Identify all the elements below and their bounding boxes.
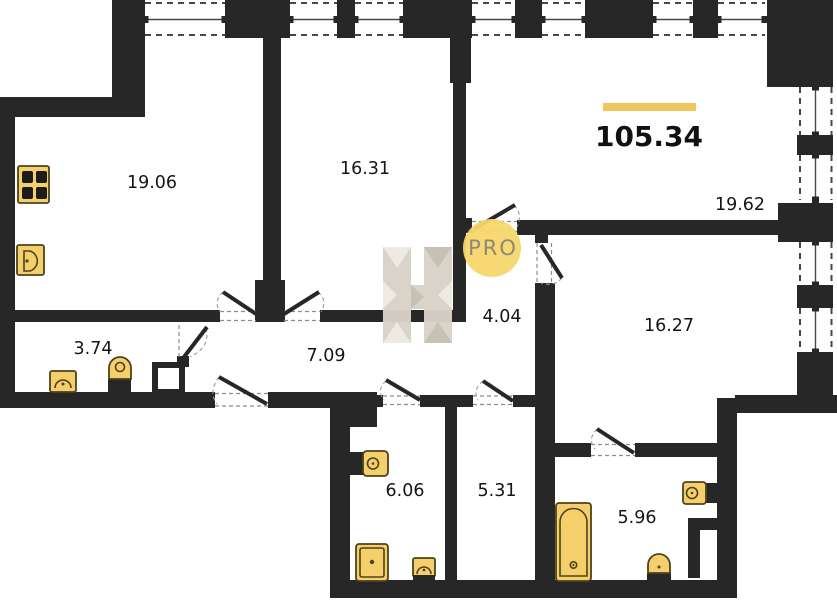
room-area-19-06: 19.06 — [127, 173, 177, 193]
bathtub-icon — [556, 503, 591, 581]
room-area-4-04: 4.04 — [483, 307, 522, 327]
pro-badge: PRO — [463, 219, 521, 277]
stove-icon — [18, 166, 49, 203]
corner-sink-icon — [683, 482, 717, 504]
door-entrance — [213, 377, 268, 406]
pro-badge-text: PRO — [468, 236, 518, 260]
washing-machine-icon — [356, 544, 388, 581]
wall-sink-icon — [350, 451, 388, 476]
toilet-icon — [108, 357, 131, 393]
room-area-7-09: 7.09 — [307, 346, 346, 366]
room-area-5-96: 5.96 — [618, 508, 657, 528]
room-area-5-31: 5.31 — [478, 481, 517, 501]
room-area-3-74: 3.74 — [74, 339, 113, 359]
door-room-16-27 — [537, 243, 562, 284]
door-kitchen-19-06 — [217, 292, 256, 321]
room-area-19-62: 19.62 — [715, 195, 765, 215]
room-area-6-06: 6.06 — [386, 481, 425, 501]
toilet-icon — [647, 554, 671, 580]
door-bedroom-16-31 — [284, 292, 324, 321]
bathroom-sink-icon — [50, 371, 76, 392]
kitchen-sink-icon — [17, 245, 44, 275]
door-bathroom-6-06 — [380, 380, 420, 405]
total-area-underline — [603, 103, 696, 111]
door-bathroom-5-96 — [591, 429, 635, 456]
h-logo-watermark — [383, 247, 452, 343]
room-area-16-31: 16.31 — [340, 159, 390, 179]
room-area-16-27: 16.27 — [644, 316, 694, 336]
small-sink-icon — [413, 558, 435, 582]
door-wc-3-74 — [179, 325, 207, 357]
floor-plan: PRO 105.34 19.06 16.31 19.62 16.27 4.04 … — [0, 0, 837, 600]
total-area-label: 105.34 — [595, 120, 703, 153]
floor-plan-canvas: PRO 105.34 19.06 16.31 19.62 16.27 4.04 … — [0, 0, 837, 600]
door-storage-5-31 — [473, 381, 513, 405]
